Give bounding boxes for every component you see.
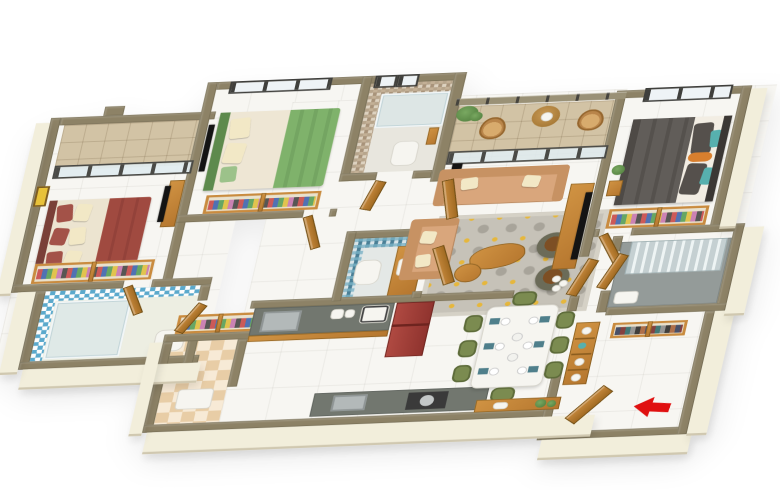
shelf-line bbox=[571, 353, 591, 355]
utility-mat bbox=[174, 388, 215, 410]
bed2-pillow-green bbox=[219, 166, 237, 183]
place-mat bbox=[477, 368, 488, 375]
shelf-item bbox=[574, 358, 586, 366]
bedroom2-bed bbox=[203, 108, 341, 191]
place-mat bbox=[489, 318, 500, 325]
wall-bath2-south-b bbox=[412, 170, 433, 179]
bed1-pillow-cream-1 bbox=[72, 204, 94, 222]
kitchen-sink-2 bbox=[330, 394, 368, 411]
sofa-pillow bbox=[419, 231, 438, 244]
floorplan-scene bbox=[0, 0, 780, 490]
bed1-pillow-maroon-2 bbox=[48, 228, 70, 246]
bed1-pillow-maroon-1 bbox=[56, 204, 73, 223]
bed2-pillow-1 bbox=[229, 117, 251, 139]
kitchen-microwave bbox=[358, 305, 390, 324]
plate bbox=[500, 318, 512, 326]
sofa-arm-top bbox=[410, 218, 460, 228]
bath2-shower-glass bbox=[374, 91, 451, 128]
shelf-item-teal bbox=[577, 342, 586, 349]
sofa-pillow bbox=[415, 254, 431, 268]
wall-powder-east-b bbox=[411, 291, 423, 298]
foyer-shoe-rack bbox=[610, 320, 689, 339]
shelf-line bbox=[575, 337, 595, 339]
plate bbox=[494, 343, 506, 351]
bed2-pillow-2 bbox=[221, 143, 248, 164]
sofa-pillow bbox=[461, 177, 479, 191]
place-mat bbox=[527, 366, 538, 373]
place-mat bbox=[483, 343, 494, 350]
master-bed bbox=[614, 116, 733, 206]
bath2-window-b bbox=[395, 74, 420, 87]
table-item bbox=[540, 112, 554, 122]
shelf-item bbox=[570, 373, 582, 381]
place-mat bbox=[533, 341, 544, 348]
shelf-line bbox=[567, 369, 587, 371]
hob-pot bbox=[419, 395, 436, 406]
bed1-pillow-cream-2 bbox=[69, 227, 87, 246]
wall-chimney-stub bbox=[103, 106, 125, 116]
vase bbox=[551, 285, 562, 292]
console-plant bbox=[534, 399, 547, 408]
plate bbox=[516, 366, 528, 374]
kitchen-sink bbox=[259, 310, 302, 332]
center-bowl bbox=[506, 353, 519, 362]
plate bbox=[522, 341, 534, 349]
console-dish bbox=[492, 402, 509, 410]
plate bbox=[488, 367, 500, 375]
fridge-divider bbox=[391, 323, 430, 327]
apartment-plan bbox=[0, 56, 780, 490]
place-mat bbox=[539, 316, 550, 323]
center-bowl bbox=[511, 333, 524, 342]
shelf-item bbox=[581, 327, 593, 335]
bath1-shower-glass bbox=[43, 299, 132, 360]
plate bbox=[528, 316, 540, 324]
kitchen-hob bbox=[405, 391, 449, 410]
master-shower-glass-wall bbox=[624, 238, 728, 275]
master-bath-tray bbox=[613, 291, 640, 304]
wall-bath2-south-a bbox=[339, 172, 378, 181]
bed3-orange-bolster bbox=[687, 152, 713, 162]
sofa-pillow bbox=[521, 175, 542, 188]
console-plant bbox=[546, 400, 557, 407]
